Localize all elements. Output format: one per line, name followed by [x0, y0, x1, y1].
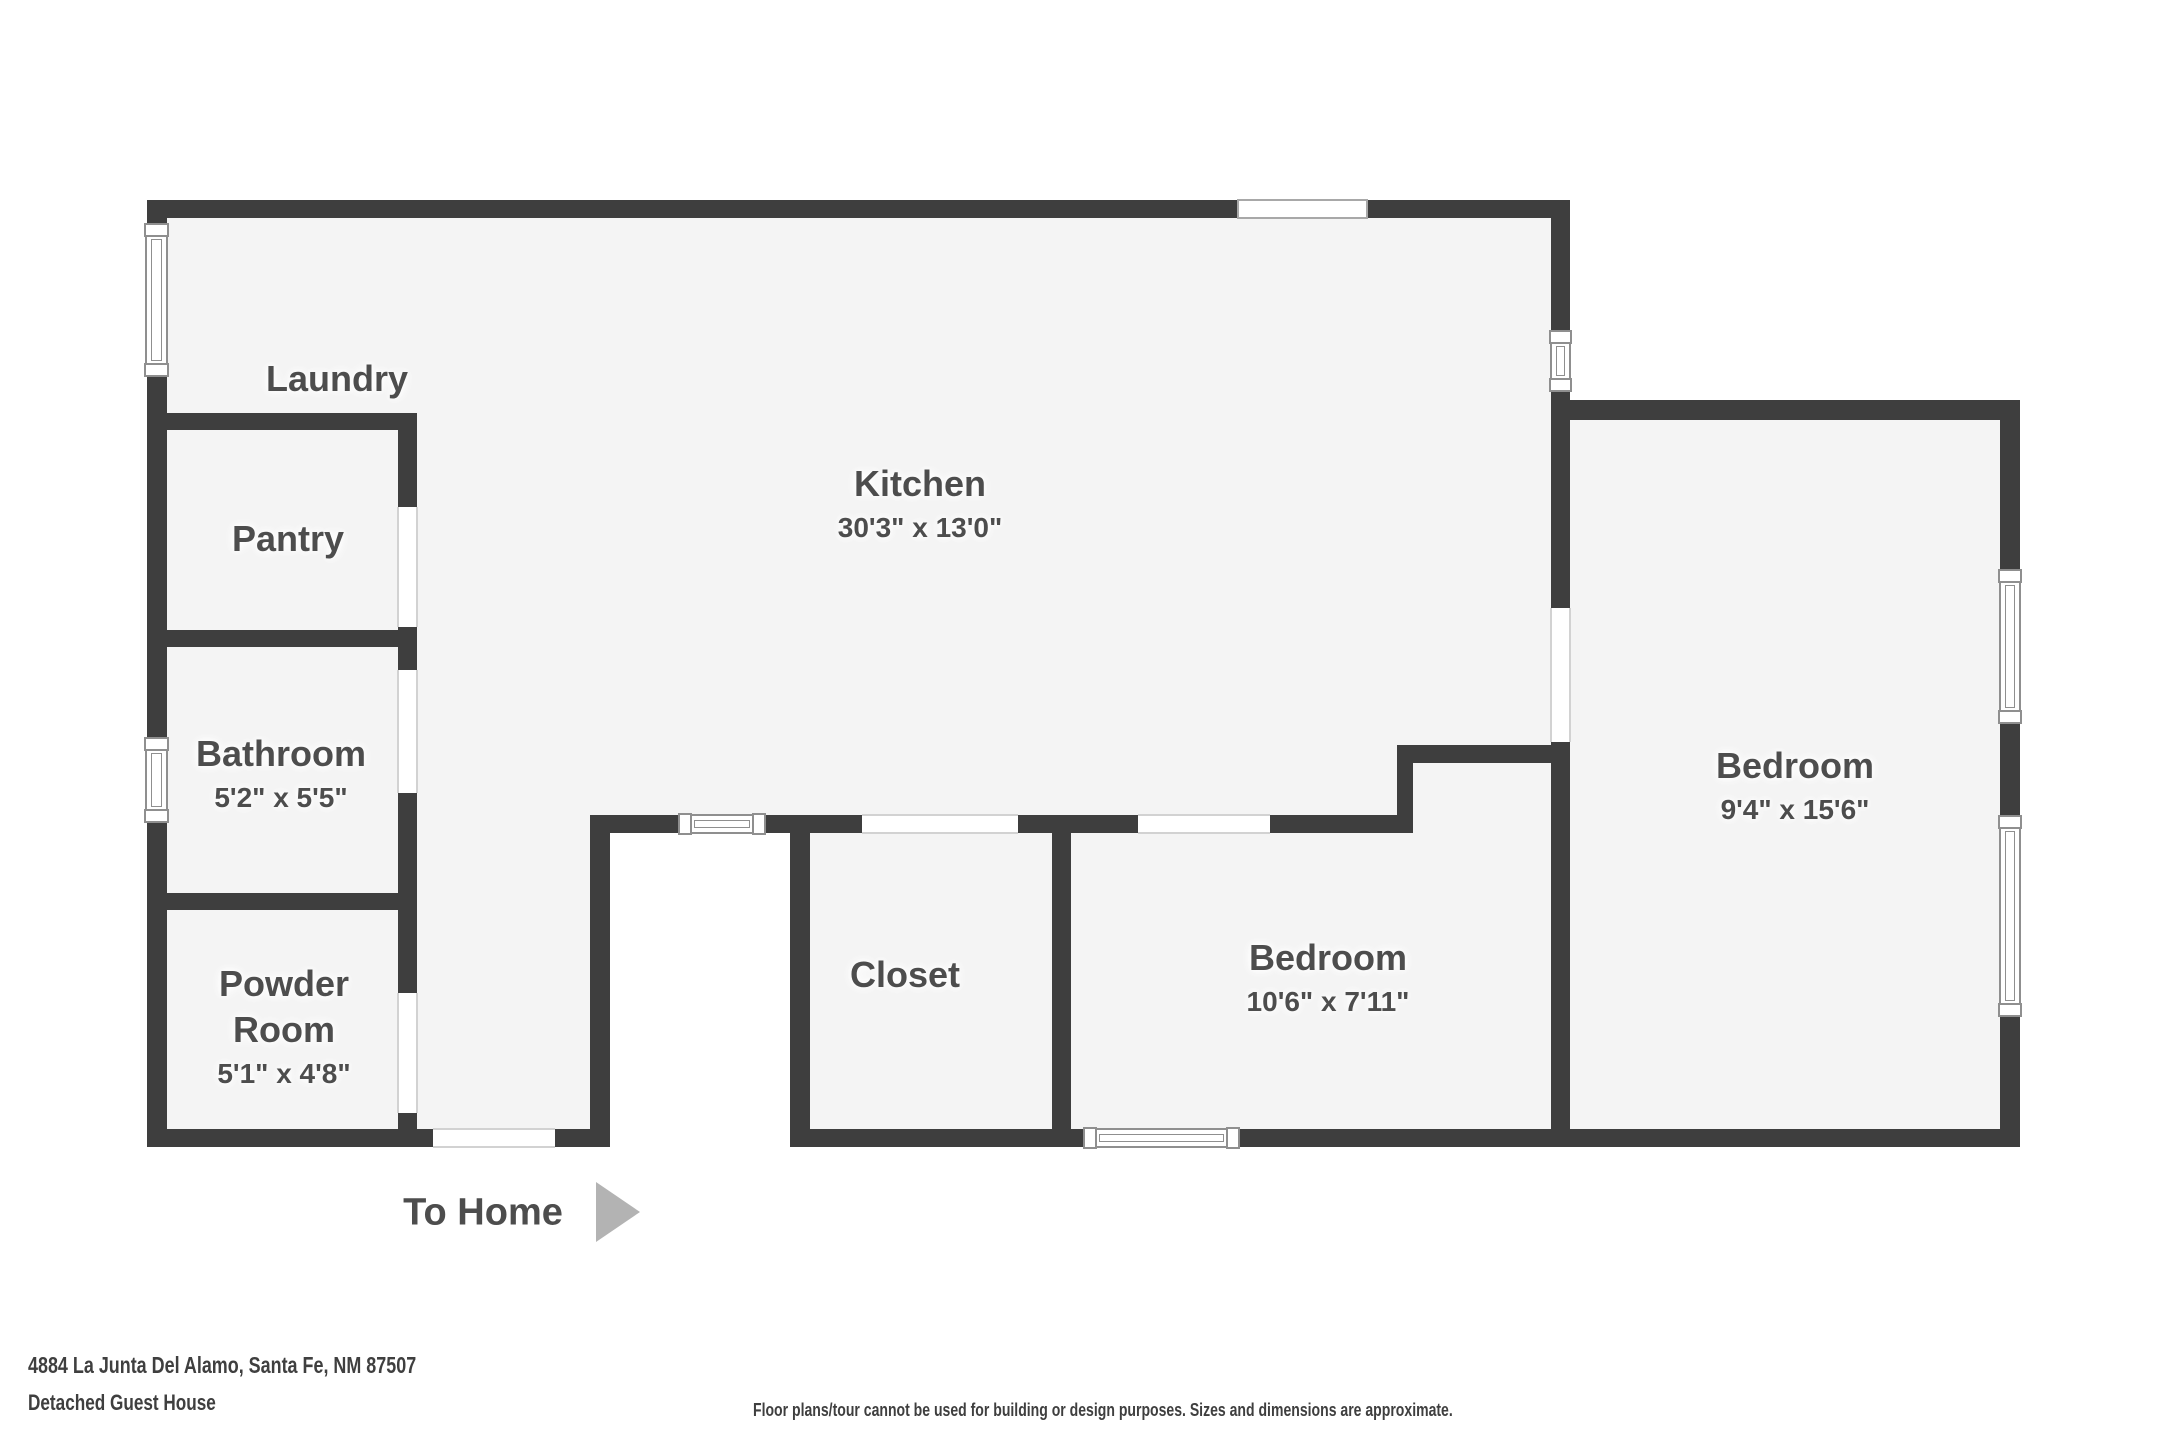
pantry-door [397, 507, 418, 627]
wall-corridor-right [590, 815, 610, 1147]
powder-room-door [397, 993, 418, 1113]
kitchen-right-window [1550, 330, 1571, 392]
room-dims: 5'2" x 5'5" [214, 781, 347, 815]
room-label-powder-room: Powder Room 5'1" x 4'8" [174, 961, 394, 1091]
wall-bathroom-bottom [147, 893, 415, 910]
room-label-kitchen: Kitchen 30'3" x 13'0" [838, 461, 1002, 545]
room-name: Powder Room [174, 961, 394, 1053]
closet-door [862, 814, 1018, 834]
room-dims: 30'3" x 13'0" [838, 511, 1002, 545]
wall-pantry-bottom [147, 630, 417, 647]
bathroom-door [397, 670, 418, 793]
wall-bottom-right [790, 1129, 2020, 1147]
room-name: Bathroom [196, 731, 366, 777]
room-dims: 10'6" x 7'11" [1247, 985, 1410, 1019]
bedroom1-bottom-window [1083, 1128, 1240, 1148]
room-name: Bedroom [1716, 743, 1874, 789]
room-name: Bedroom [1249, 935, 1407, 981]
room-name: Closet [850, 952, 960, 998]
bedroom2-window-upper [1999, 569, 2021, 724]
wall-step-top [1412, 745, 1570, 763]
room-name: Kitchen [854, 461, 986, 507]
bathroom-window [145, 737, 168, 823]
entry-door [433, 1128, 555, 1148]
floor-plan: Laundry Pantry Bathroom 5'2" x 5'5" Powd… [0, 0, 2160, 1440]
room-name: Laundry [266, 356, 408, 402]
room-name: Pantry [232, 516, 344, 562]
room-label-bedroom1: Bedroom 10'6" x 7'11" [1247, 935, 1410, 1019]
outdoor-notch [610, 833, 790, 1163]
wall-bedroom2-right [2000, 400, 2020, 1147]
kitchen-bottom-window [678, 814, 766, 834]
wall-closet-bedroom-divider [1052, 833, 1071, 1147]
to-home-label: To Home [403, 1192, 563, 1235]
bedroom2-window-lower [1999, 815, 2021, 1017]
room-dims: 9'4" x 15'6" [1721, 793, 1870, 827]
room-label-pantry: Pantry [232, 516, 344, 562]
room-dims: 5'1" x 4'8" [217, 1057, 350, 1091]
wall-step-vertical [1397, 745, 1413, 833]
room-label-closet: Closet [850, 952, 960, 998]
room-label-bedroom2: Bedroom 9'4" x 15'6" [1716, 743, 1874, 827]
top-wall-opening [1237, 199, 1368, 219]
bedroom2-door [1550, 608, 1571, 742]
laundry-window [145, 223, 168, 377]
room-label-bathroom: Bathroom 5'2" x 5'5" [196, 731, 366, 815]
footer-address: 4884 La Junta Del Alamo, Santa Fe, NM 87… [28, 1352, 416, 1379]
footer-subtitle: Detached Guest House [28, 1390, 216, 1416]
bedroom1-door [1138, 814, 1270, 834]
room-label-laundry: Laundry [266, 356, 408, 402]
footer-disclaimer: Floor plans/tour cannot be used for buil… [753, 1400, 1453, 1421]
to-home-arrow-icon [596, 1182, 640, 1242]
wall-pantry-top [147, 413, 417, 430]
wall-closet-left [790, 815, 810, 1147]
wall-bedroom2-top [1560, 400, 2020, 420]
